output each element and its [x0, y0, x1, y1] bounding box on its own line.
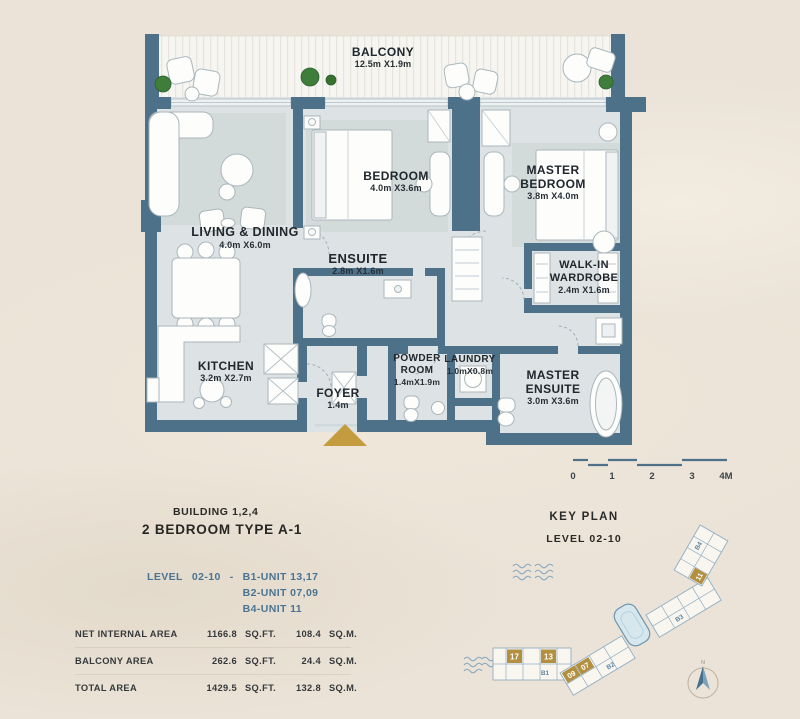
table-row: NET INTERNAL AREA 1166.8 SQ.FT. 108.4 SQ… — [75, 621, 351, 648]
label-powder-room: POWDER ROOM 1.4mX1.9m — [393, 353, 440, 387]
sqm-value: 108.4 — [289, 629, 329, 639]
sqm-unit: SQ.M. — [329, 683, 367, 693]
sqft-unit: SQ.FT. — [245, 629, 289, 639]
unit-13-label: 13 — [544, 653, 553, 662]
label-laundry: LAUNDRY 1.0mX0.8m — [444, 354, 495, 376]
sqm-unit: SQ.M. — [329, 629, 367, 639]
compass-north-label: N — [701, 660, 705, 666]
page: BALCONY 12.5m X1.9m LIVING & DINING 4.0m… — [0, 0, 800, 719]
key-plan-building-b1: 17 13 B1 — [493, 648, 571, 680]
label-master-bedroom: MASTER BEDROOM 3.8m X4.0m — [520, 163, 585, 202]
level-separator: - — [230, 571, 234, 615]
sqft-unit: SQ.FT. — [245, 656, 289, 666]
key-plan-building-b3: B3 — [646, 578, 721, 637]
sqft-unit: SQ.FT. — [245, 683, 289, 693]
sqm-value: 24.4 — [289, 656, 329, 666]
scale-tick-1: 1 — [609, 471, 615, 482]
windows — [171, 99, 606, 106]
sqft-value: 1429.5 — [199, 683, 245, 693]
row-label: NET INTERNAL AREA — [75, 629, 199, 639]
label-walk-in-wardrobe: WALK-IN WARDROBE 2.4m X1.6m — [550, 259, 619, 296]
label-bedroom: BEDROOM 4.0m X3.6m — [363, 169, 428, 194]
scale-tick-3: 3 — [689, 471, 694, 482]
scale-bar: 0 1 2 3 4M — [562, 452, 738, 484]
scale-tick-2: 2 — [649, 471, 654, 482]
sqft-value: 1166.8 — [199, 629, 245, 639]
building-label: BUILDING 1,2,4 — [173, 506, 258, 518]
label-kitchen: KITCHEN 3.2m X2.7m — [198, 359, 254, 384]
building-b1-label: B1 — [541, 670, 550, 677]
level-unit-b1: B1-UNIT 13,17 — [243, 571, 319, 583]
level-info: LEVEL 02-10 - B1-UNIT 13,17 B2-UNIT 07,0… — [147, 571, 318, 615]
table-row: BALCONY AREA 262.6 SQ.FT. 24.4 SQ.M. — [75, 648, 351, 675]
unit-17-label: 17 — [510, 653, 519, 662]
row-label: TOTAL AREA — [75, 683, 199, 693]
entrance-threshold — [315, 424, 357, 427]
sqm-unit: SQ.M. — [329, 656, 367, 666]
key-plan-map: 17 13 B1 09 07 B2 — [450, 520, 770, 710]
row-label: BALCONY AREA — [75, 656, 199, 666]
scale-tick-4: 4M — [719, 471, 732, 482]
level-value: 02-10 — [192, 571, 221, 615]
sqm-value: 132.8 — [289, 683, 329, 693]
unit-type-title: 2 BEDROOM TYPE A-1 — [142, 522, 302, 537]
area-table: NET INTERNAL AREA 1166.8 SQ.FT. 108.4 SQ… — [75, 621, 351, 701]
label-balcony: BALCONY 12.5m X1.9m — [352, 45, 414, 70]
table-row: TOTAL AREA 1429.5 SQ.FT. 132.8 SQ.M. — [75, 675, 351, 701]
label-foyer: FOYER 1.4m — [316, 386, 359, 411]
level-unit-b4: B4-UNIT 11 — [243, 603, 319, 615]
level-unit-b2: B2-UNIT 07,09 — [243, 587, 319, 599]
key-plan-building-b4: 11 B4 — [674, 525, 728, 586]
level-label: LEVEL — [147, 571, 183, 615]
compass-icon: N — [688, 660, 718, 698]
label-master-ensuite: MASTER ENSUITE 3.0m X3.6m — [526, 368, 581, 407]
sqft-value: 262.6 — [199, 656, 245, 666]
label-living-dining: LIVING & DINING 4.0m X6.0m — [191, 225, 298, 250]
label-ensuite: ENSUITE 2.8m X1.6m — [328, 251, 387, 277]
scale-tick-0: 0 — [570, 471, 575, 482]
